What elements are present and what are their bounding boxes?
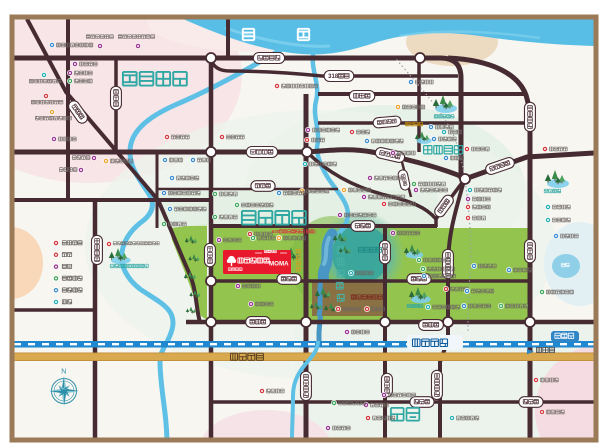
svg-text:MOMA: MOMA xyxy=(269,261,289,268)
svg-text:N: N xyxy=(61,369,66,376)
